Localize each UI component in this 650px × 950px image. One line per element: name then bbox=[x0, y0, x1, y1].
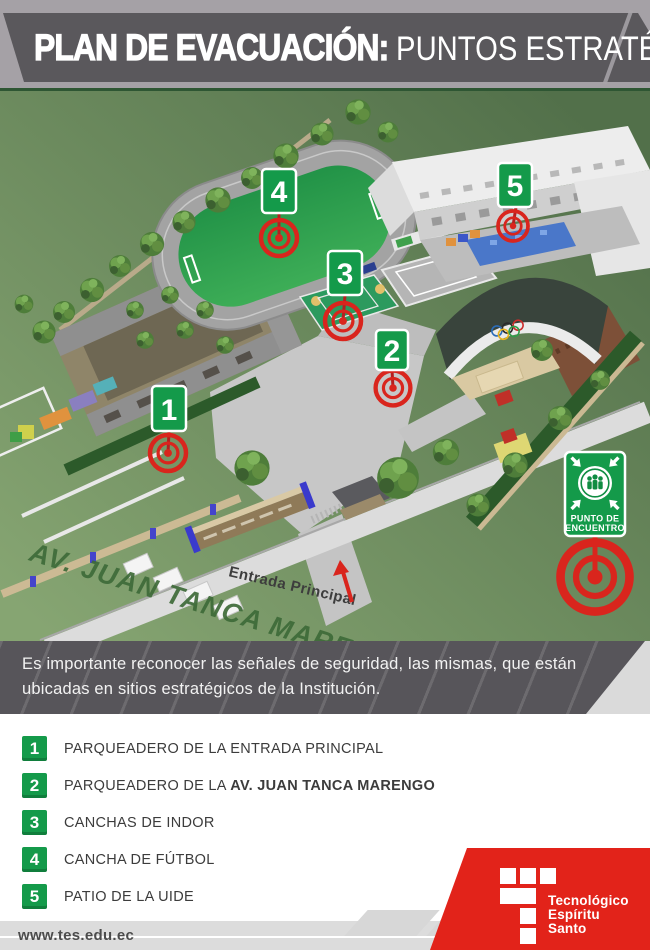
logo-t-icon bbox=[520, 868, 536, 884]
marker-4-number: 4 bbox=[271, 176, 288, 209]
institution-logo: Tecnológico Espíritu Santo bbox=[430, 848, 650, 950]
logo-t-icon bbox=[520, 908, 536, 924]
legend-label: PARQUEADERO DE LA ENTRADA PRINCIPAL bbox=[64, 741, 383, 757]
info-section: Es importante reconocer las señales de s… bbox=[0, 641, 650, 714]
meeting-point-label-1: PUNTO DE bbox=[571, 514, 620, 524]
marker-2-number: 2 bbox=[384, 335, 401, 368]
meeting-point-sign: PUNTO DE ENCUENTRO bbox=[565, 452, 625, 536]
website-url: www.tes.edu.ec bbox=[18, 927, 134, 944]
logo-t-icon bbox=[520, 928, 536, 944]
legend-item-1: 1 PARQUEADERO DE LA ENTRADA PRINCIPAL bbox=[22, 736, 650, 761]
campus-map: AV. JUAN TANCA MARENGO Entrada Principal… bbox=[0, 88, 650, 641]
logo-t-icon bbox=[500, 888, 536, 904]
logo-t-icon bbox=[500, 868, 516, 884]
marker-5-number: 5 bbox=[507, 170, 524, 203]
legend-label: CANCHA DE FÚTBOL bbox=[64, 852, 215, 868]
title-main: PLAN DE EVACUACIÓN: bbox=[34, 27, 388, 69]
legend-number-badge: 2 bbox=[22, 773, 47, 798]
legend-label: CANCHAS DE INDOR bbox=[64, 815, 215, 831]
evacuation-plan-poster: PLAN DE EVACUACIÓN: PUNTOS ESTRATÉGICOS bbox=[0, 0, 650, 950]
legend-number-badge: 1 bbox=[22, 736, 47, 761]
legend-item-3: 3 CANCHAS DE INDOR bbox=[22, 810, 650, 835]
meeting-point-label-2: ENCUENTRO bbox=[565, 523, 625, 533]
legend-label: PARQUEADERO DE LA AV. JUAN TANCA MARENGO bbox=[64, 778, 435, 794]
logo-text: Tecnológico Espíritu Santo bbox=[548, 894, 629, 937]
header: PLAN DE EVACUACIÓN: PUNTOS ESTRATÉGICOS bbox=[0, 0, 650, 88]
marker-1-number: 1 bbox=[161, 394, 178, 427]
logo-t-icon bbox=[540, 868, 556, 884]
page-title: PLAN DE EVACUACIÓN: PUNTOS ESTRATÉGICOS bbox=[34, 13, 650, 82]
title-sub: PUNTOS ESTRATÉGICOS bbox=[396, 30, 650, 69]
marker-3-number: 3 bbox=[337, 258, 354, 291]
legend-item-2: 2 PARQUEADERO DE LA AV. JUAN TANCA MAREN… bbox=[22, 773, 650, 798]
legend-number-badge: 5 bbox=[22, 884, 47, 909]
legend-number-badge: 3 bbox=[22, 810, 47, 835]
legend-label: PATIO DE LA UIDE bbox=[64, 889, 194, 905]
info-text: Es importante reconocer las señales de s… bbox=[22, 652, 587, 702]
map-top-edge bbox=[0, 88, 650, 91]
legend-number-badge: 4 bbox=[22, 847, 47, 872]
